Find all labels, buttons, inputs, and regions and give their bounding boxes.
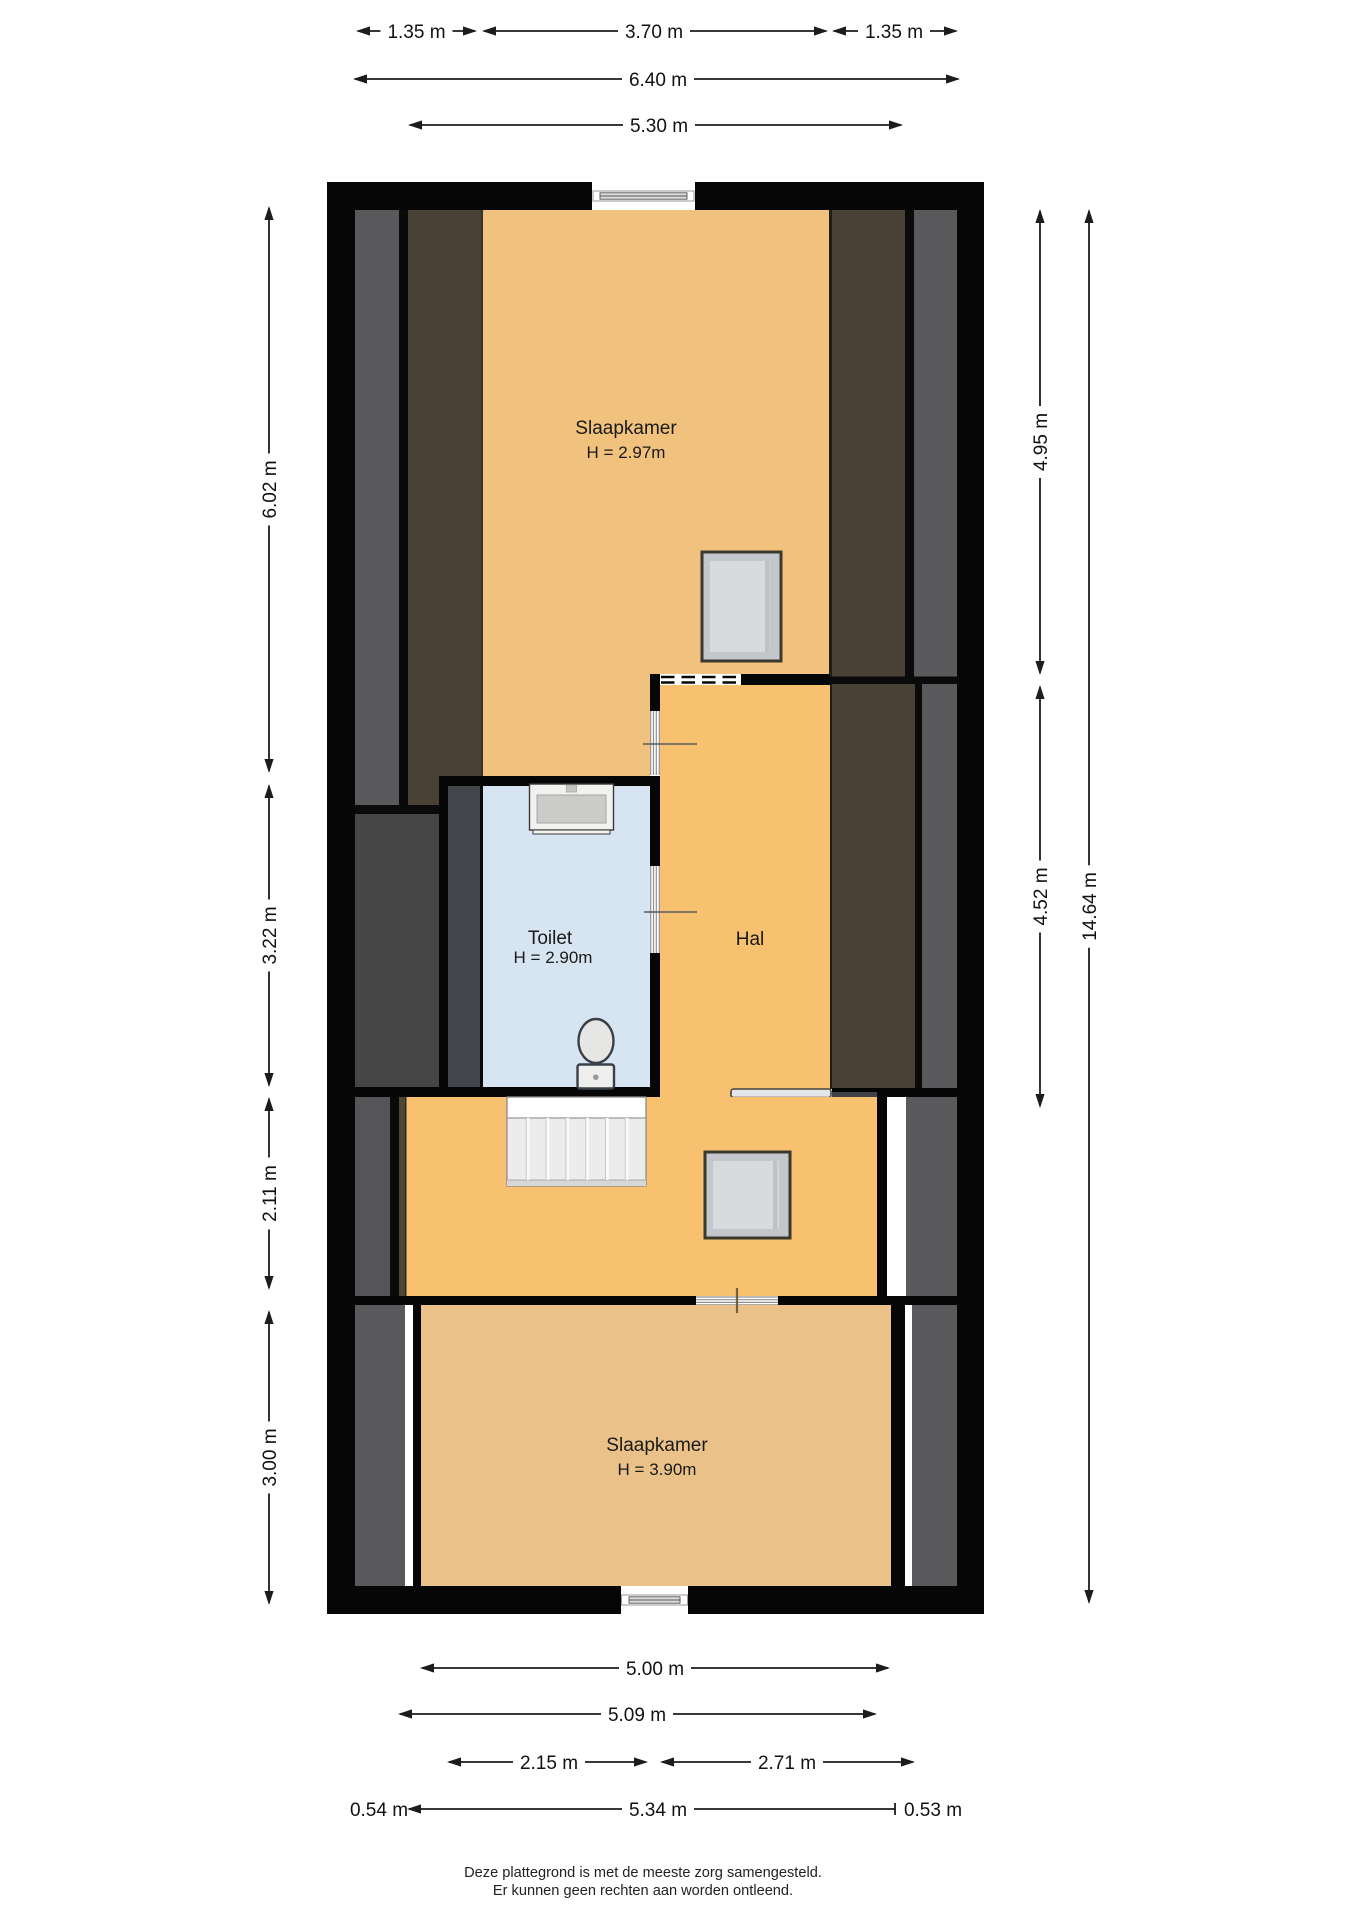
svg-text:H = 2.97m: H = 2.97m bbox=[587, 443, 666, 462]
svg-text:Slaapkamer: Slaapkamer bbox=[575, 418, 677, 439]
svg-text:0.53 m: 0.53 m bbox=[904, 1800, 962, 1821]
svg-text:2.15 m: 2.15 m bbox=[520, 1753, 578, 1774]
svg-text:Toilet: Toilet bbox=[528, 928, 573, 949]
svg-text:1.35 m: 1.35 m bbox=[387, 22, 445, 43]
svg-text:Deze plattegrond is met de mee: Deze plattegrond is met de meeste zorg s… bbox=[464, 1865, 822, 1881]
svg-text:3.70 m: 3.70 m bbox=[625, 22, 683, 43]
svg-text:Hal: Hal bbox=[736, 929, 765, 950]
svg-text:6.02 m: 6.02 m bbox=[260, 460, 281, 518]
svg-text:4.52 m: 4.52 m bbox=[1031, 867, 1052, 925]
svg-text:H = 2.90m: H = 2.90m bbox=[514, 948, 593, 967]
svg-text:5.34 m: 5.34 m bbox=[629, 1800, 687, 1821]
svg-text:0.54 m: 0.54 m bbox=[350, 1800, 408, 1821]
svg-text:6.40 m: 6.40 m bbox=[629, 70, 687, 91]
svg-text:2.71 m: 2.71 m bbox=[758, 1753, 816, 1774]
svg-text:4.95 m: 4.95 m bbox=[1031, 413, 1052, 471]
svg-text:5.09 m: 5.09 m bbox=[608, 1705, 666, 1726]
svg-text:5.30 m: 5.30 m bbox=[630, 116, 688, 137]
svg-text:14.64 m: 14.64 m bbox=[1080, 872, 1101, 941]
svg-text:3.00 m: 3.00 m bbox=[260, 1428, 281, 1486]
svg-text:H = 3.90m: H = 3.90m bbox=[618, 1460, 697, 1479]
svg-text:Slaapkamer: Slaapkamer bbox=[606, 1435, 708, 1456]
svg-text:5.00 m: 5.00 m bbox=[626, 1659, 684, 1680]
svg-text:Er kunnen geen rechten aan wor: Er kunnen geen rechten aan worden ontlee… bbox=[493, 1883, 793, 1899]
svg-text:1.35 m: 1.35 m bbox=[865, 22, 923, 43]
svg-text:3.22 m: 3.22 m bbox=[260, 906, 281, 964]
svg-text:2.11 m: 2.11 m bbox=[260, 1165, 281, 1222]
